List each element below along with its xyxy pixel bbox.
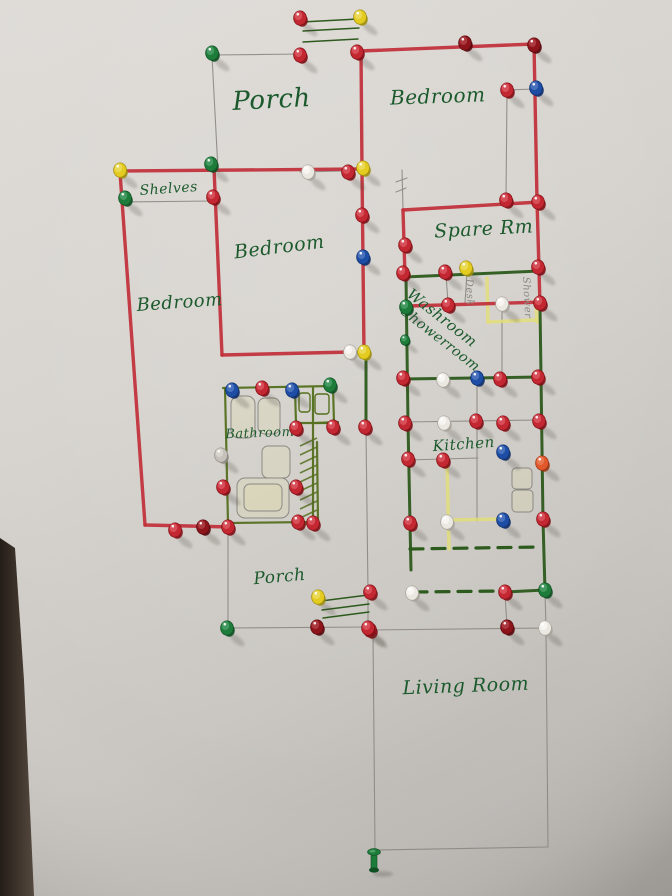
pin-highlight	[358, 161, 366, 170]
pin-specular	[500, 447, 503, 450]
pin-highlight	[438, 373, 446, 382]
pin-highlight	[206, 157, 214, 166]
pin-specular	[535, 262, 538, 265]
dashed-green-wall-segment	[414, 591, 502, 592]
pin-highlight	[501, 193, 509, 202]
pin-highlight	[471, 414, 479, 423]
pin-highlight	[287, 383, 295, 392]
pin-highlight	[293, 515, 301, 524]
pin-specular	[440, 455, 443, 458]
pin-highlight	[533, 260, 541, 269]
pin-specular	[540, 514, 543, 517]
pin-highlight	[537, 456, 545, 465]
pin-specular	[535, 197, 538, 200]
pin-specular	[504, 622, 507, 625]
pin-specular	[330, 422, 333, 425]
floor-plan-drawing: PorchBedroomShelvesBedroomBedroomSpare R…	[0, 0, 672, 896]
pin-specular	[259, 383, 262, 386]
pin-highlight	[308, 516, 316, 525]
pin-highlight	[403, 452, 411, 461]
highlighter-line-segment	[449, 519, 502, 520]
pin-specular	[499, 299, 502, 302]
pin-specular	[293, 482, 296, 485]
pin-highlight	[538, 512, 546, 521]
pin-specular	[402, 240, 405, 243]
highlighter-line-segment	[487, 278, 488, 322]
pin-highlight	[360, 420, 368, 429]
pin-highlight	[442, 515, 450, 524]
pin-specular	[347, 347, 350, 350]
pin-specular	[209, 48, 212, 51]
pin-specular	[365, 623, 368, 626]
pin-specular	[367, 587, 370, 590]
pin-specular	[442, 267, 445, 270]
pin-highlight	[355, 10, 363, 19]
room-label-bathroom: Bathroom	[224, 425, 295, 442]
pin-specular	[360, 163, 363, 166]
fixture-sketch	[262, 446, 290, 478]
pin-specular	[444, 517, 447, 520]
pin-highlight	[534, 414, 542, 423]
pin-specular	[327, 380, 330, 383]
pin-specular	[537, 298, 540, 301]
pin-specular	[531, 40, 534, 43]
pin-highlight	[502, 620, 510, 629]
pin-specular	[400, 268, 403, 271]
pin-highlight	[540, 621, 548, 630]
pin-highlight	[365, 585, 373, 594]
pin-specular	[122, 193, 125, 196]
red-wall-segment	[361, 50, 362, 171]
fixture-sketch	[512, 490, 533, 512]
pin-highlight	[531, 81, 539, 90]
pin-specular	[500, 515, 503, 518]
pin-specular	[354, 47, 357, 50]
pin-highlight	[359, 345, 367, 354]
pin-specular	[359, 210, 362, 213]
pin-highlight	[328, 420, 336, 429]
pin-highlight	[401, 300, 409, 309]
pin-highlight	[405, 516, 413, 525]
green-wall-segment	[408, 423, 410, 523]
pin-specular	[403, 302, 406, 305]
pin-highlight	[460, 36, 468, 45]
green-wall-segment	[543, 520, 545, 591]
red-wall-segment	[120, 169, 362, 171]
pencil-note-shower-note: Shower	[520, 277, 533, 320]
pin-specular	[463, 263, 466, 266]
pin-highlight	[313, 590, 321, 599]
pin-specular	[407, 518, 410, 521]
pin-highlight	[208, 190, 216, 199]
pin-specular	[305, 167, 308, 170]
highlighter-line-segment	[447, 462, 449, 549]
pin-highlight	[400, 416, 408, 425]
pin-highlight	[207, 46, 215, 55]
pin-specular	[218, 450, 221, 453]
pin-specular	[440, 375, 443, 378]
room-label-bedroom-top-right: Bedroom	[389, 82, 486, 109]
pin-specular	[445, 300, 448, 303]
fixture-sketch	[512, 468, 532, 489]
pin-specular	[117, 165, 120, 168]
pin-highlight	[303, 165, 311, 174]
pin-highlight	[535, 296, 543, 305]
pin-highlight	[439, 416, 447, 425]
pin-highlight	[398, 266, 406, 275]
pin-highlight	[227, 383, 235, 392]
pin-highlight	[222, 621, 230, 630]
fixture-sketch	[244, 484, 282, 511]
pin-specular	[362, 422, 365, 425]
pin-specular	[497, 374, 500, 377]
whiteboard-photo: PorchBedroomShelvesBedroomBedroomSpare R…	[0, 0, 672, 896]
pin-highlight	[533, 370, 541, 379]
pin-highlight	[223, 520, 231, 529]
pin-specular	[293, 423, 296, 426]
pin-highlight	[345, 345, 353, 354]
red-wall-segment	[145, 525, 232, 527]
pin-specular	[409, 588, 412, 591]
pin-specular	[289, 385, 292, 388]
pin-specular	[310, 518, 313, 521]
pin-specular	[295, 517, 298, 520]
pin-highlight	[352, 45, 360, 54]
pin-specular	[504, 85, 507, 88]
pin-specular	[172, 525, 175, 528]
pin-specular	[405, 454, 408, 457]
pin-specular	[474, 373, 477, 376]
pin-highlight	[495, 372, 503, 381]
pin-highlight	[540, 583, 548, 592]
pin-specular	[229, 385, 232, 388]
pin-highlight	[295, 11, 303, 20]
pin-highlight	[498, 513, 506, 522]
pin-highlight	[498, 416, 506, 425]
pin-specular	[500, 418, 503, 421]
pin-highlight	[401, 335, 406, 341]
pin-specular	[462, 38, 465, 41]
pin-highlight	[216, 448, 224, 457]
bathroom-wall-segment	[317, 442, 318, 522]
pin-cap-highlight	[370, 850, 376, 853]
pin-specular	[297, 50, 300, 53]
pin-specular	[357, 12, 360, 15]
pin-highlight	[343, 165, 351, 174]
pin-highlight	[363, 621, 371, 630]
pin-highlight	[497, 297, 505, 306]
pin-specular	[345, 167, 348, 170]
pin-highlight	[400, 238, 408, 247]
pin-highlight	[218, 480, 226, 489]
pin-highlight	[438, 453, 446, 462]
pin-specular	[533, 83, 536, 86]
pin-specular	[536, 416, 539, 419]
pin-highlight	[325, 378, 333, 387]
pin-specular	[361, 347, 364, 350]
pin-highlight	[312, 620, 320, 629]
pin-base	[369, 867, 379, 872]
pin-specular	[220, 482, 223, 485]
pin-specular	[473, 416, 476, 419]
pin-specular	[542, 585, 545, 588]
pin-highlight	[502, 83, 510, 92]
pin-highlight	[533, 195, 541, 204]
pin-highlight	[500, 585, 508, 594]
pin-specular	[400, 373, 403, 376]
pin-specular	[210, 192, 213, 195]
pin-highlight	[291, 421, 299, 430]
pin-highlight	[170, 523, 178, 532]
pin-specular	[503, 195, 506, 198]
pin-highlight	[115, 163, 123, 172]
pin-highlight	[357, 208, 365, 217]
pin-specular	[402, 418, 405, 421]
pin-highlight	[498, 445, 506, 454]
pin-highlight	[407, 586, 415, 595]
pin-highlight	[291, 480, 299, 489]
pin-highlight	[120, 191, 128, 200]
room-label-living-room: Living Room	[401, 673, 529, 699]
pin-specular	[315, 592, 318, 595]
pin-specular	[535, 372, 538, 375]
pin-specular	[297, 13, 300, 16]
pin-specular	[360, 252, 363, 255]
pin-specular	[225, 522, 228, 525]
pin-specular	[441, 418, 444, 421]
pin-highlight	[443, 298, 451, 307]
board-surface	[0, 0, 672, 896]
pin-specular	[502, 587, 505, 590]
pin-highlight	[472, 371, 480, 380]
pin-specular	[314, 622, 317, 625]
pin-highlight	[398, 371, 406, 380]
pin-specular	[224, 623, 227, 626]
pin-specular	[402, 336, 404, 338]
pin-highlight	[198, 520, 206, 529]
pin-specular	[208, 159, 211, 162]
pin-specular	[542, 623, 545, 626]
pin-highlight	[358, 250, 366, 259]
pin-highlight	[440, 265, 448, 274]
pin-highlight	[461, 261, 469, 270]
pin-highlight	[529, 38, 537, 47]
pin-highlight	[257, 381, 265, 390]
room-label-porch-top: Porch	[231, 83, 312, 117]
pin-specular	[200, 522, 203, 525]
pin-highlight	[295, 48, 303, 57]
pin-specular	[539, 458, 542, 461]
